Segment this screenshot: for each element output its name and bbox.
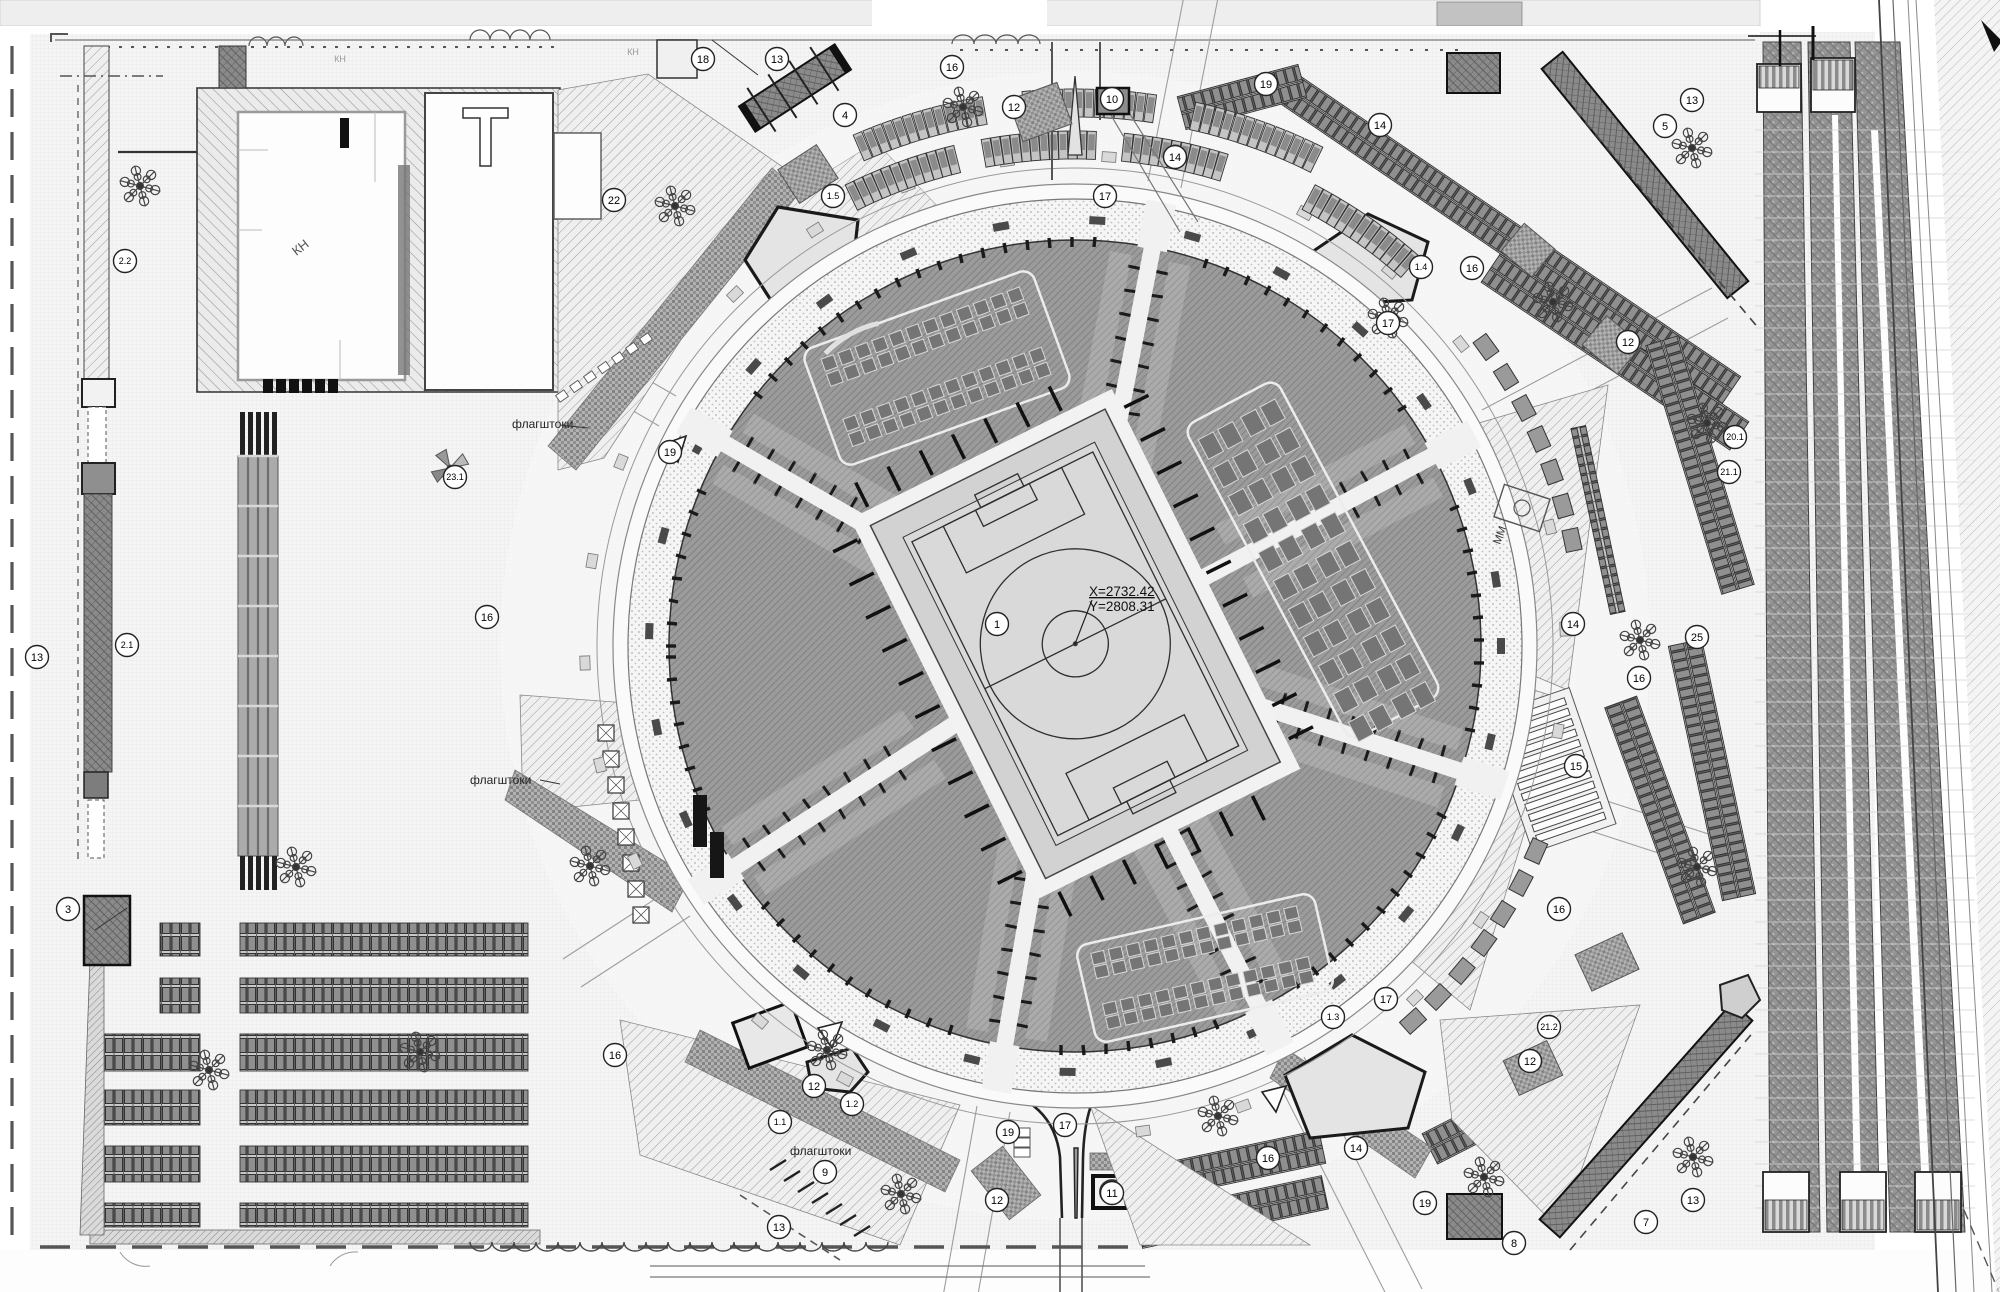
svg-text:16: 16 bbox=[1262, 1153, 1274, 1165]
svg-text:20.1: 20.1 bbox=[1726, 432, 1744, 442]
svg-text:2.2: 2.2 bbox=[119, 256, 132, 266]
svg-text:Y=2808.31: Y=2808.31 bbox=[1089, 599, 1155, 614]
svg-text:флагштоки: флагштоки bbox=[470, 773, 531, 787]
svg-text:17: 17 bbox=[1059, 1120, 1071, 1132]
svg-text:13: 13 bbox=[773, 1222, 785, 1234]
svg-text:13: 13 bbox=[31, 652, 43, 664]
svg-text:1.4: 1.4 bbox=[1415, 262, 1428, 272]
svg-text:5: 5 bbox=[1662, 121, 1668, 133]
svg-text:21.2: 21.2 bbox=[1540, 1022, 1558, 1032]
svg-text:X=2732.42: X=2732.42 bbox=[1089, 584, 1155, 599]
svg-text:КН: КН bbox=[334, 54, 346, 64]
svg-text:19: 19 bbox=[1002, 1127, 1014, 1139]
svg-text:флагштоки: флагштоки bbox=[512, 417, 573, 431]
svg-text:16: 16 bbox=[1553, 904, 1565, 916]
svg-text:16: 16 bbox=[1633, 673, 1645, 685]
svg-text:13: 13 bbox=[1686, 95, 1698, 107]
svg-text:16: 16 bbox=[481, 612, 493, 624]
svg-text:11: 11 bbox=[1106, 1188, 1117, 1200]
svg-text:16: 16 bbox=[609, 1050, 621, 1062]
svg-text:17: 17 bbox=[1380, 994, 1392, 1006]
svg-text:12: 12 bbox=[808, 1081, 820, 1093]
svg-text:1: 1 bbox=[994, 619, 1000, 631]
svg-text:12: 12 bbox=[1622, 337, 1634, 349]
svg-text:флагштоки: флагштоки bbox=[790, 1144, 851, 1158]
svg-text:9: 9 bbox=[822, 1167, 828, 1179]
svg-text:8: 8 bbox=[1511, 1238, 1517, 1250]
svg-text:21.1: 21.1 bbox=[1720, 467, 1738, 477]
svg-text:14: 14 bbox=[1350, 1143, 1362, 1155]
svg-text:23.1: 23.1 bbox=[446, 472, 464, 482]
svg-text:18: 18 bbox=[697, 54, 709, 66]
svg-text:3: 3 bbox=[65, 904, 71, 916]
svg-text:15: 15 bbox=[1570, 761, 1582, 773]
svg-text:16: 16 bbox=[946, 62, 958, 74]
svg-text:14: 14 bbox=[1567, 619, 1579, 631]
svg-text:19: 19 bbox=[1419, 1198, 1431, 1210]
svg-text:1.2: 1.2 bbox=[846, 1099, 859, 1109]
svg-text:КН: КН bbox=[627, 47, 639, 57]
svg-text:13: 13 bbox=[1687, 1195, 1699, 1207]
svg-text:2.1: 2.1 bbox=[121, 640, 134, 650]
svg-text:25: 25 bbox=[1691, 632, 1703, 644]
svg-text:19: 19 bbox=[1260, 79, 1272, 91]
svg-text:17: 17 bbox=[1099, 191, 1111, 203]
svg-text:1.5: 1.5 bbox=[827, 191, 840, 201]
svg-text:14: 14 bbox=[1169, 152, 1181, 164]
svg-text:1.1: 1.1 bbox=[774, 1117, 787, 1127]
svg-text:12: 12 bbox=[991, 1195, 1003, 1207]
svg-text:1.3: 1.3 bbox=[1327, 1012, 1340, 1022]
svg-text:7: 7 bbox=[1643, 1217, 1649, 1229]
svg-text:12: 12 bbox=[1008, 102, 1020, 114]
svg-text:12: 12 bbox=[1524, 1056, 1536, 1068]
svg-text:10: 10 bbox=[1106, 94, 1118, 106]
svg-text:14: 14 bbox=[1374, 120, 1386, 132]
svg-text:22: 22 bbox=[608, 195, 620, 207]
svg-text:13: 13 bbox=[771, 54, 783, 66]
svg-text:17: 17 bbox=[1382, 318, 1394, 330]
svg-text:4: 4 bbox=[842, 110, 848, 122]
svg-text:16: 16 bbox=[1466, 263, 1478, 275]
svg-text:19: 19 bbox=[664, 447, 676, 459]
